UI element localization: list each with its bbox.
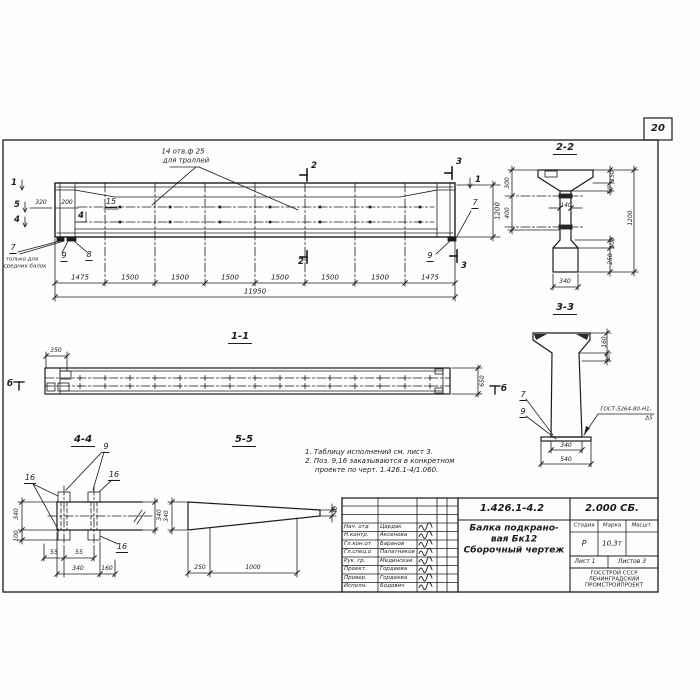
signature-role: Проект. (344, 566, 367, 572)
signature-role: Нач. отд (344, 524, 369, 530)
d44-dim-55a: 55 (50, 550, 58, 556)
d44-dim-340-left: 340 (14, 508, 20, 519)
d44-pos-16-right: 16 (108, 471, 120, 481)
dim-span-6: 1500 (321, 275, 339, 282)
signature-name: Бодович (380, 583, 404, 589)
section-1-1-linework (14, 352, 500, 397)
dim-span-8: 1475 (421, 275, 439, 282)
position-label-9-right: 9 (426, 252, 433, 262)
d55-dim-40: 40 (333, 506, 339, 514)
signature-role: Провер. (344, 575, 367, 581)
drawing-linework (0, 0, 700, 700)
s11-marker-b-right: б (501, 385, 507, 394)
d44-dim-55b: 55 (75, 550, 83, 556)
section-1-1-title: 1-1 (228, 332, 252, 344)
section-2-2-title: 2-2 (553, 143, 577, 155)
dim-total-11950: 11950 (244, 289, 266, 296)
s22-dim-250: 250 (608, 253, 614, 264)
position-label-7-left: 7 (9, 244, 16, 254)
view-marker-5-left: 5 (14, 201, 20, 210)
sheet-label: Лист 1 (575, 559, 596, 565)
section-2-2-linework (505, 166, 638, 290)
section-marker-3-bottom: 3 (461, 262, 467, 271)
signature-role: Рук. гр. (344, 558, 366, 564)
trolley-note-line2: для троллей (163, 158, 209, 165)
s22-dim-140: 140 (560, 203, 571, 209)
d55-dim-250: 250 (194, 565, 205, 571)
section-marker-3-top: 3 (456, 158, 462, 167)
position-label-4: 4 (78, 212, 84, 221)
dim-span-4: 1500 (221, 275, 239, 282)
signature-role: Гл.кон.от (344, 541, 371, 547)
mark-value: 10,3т (602, 541, 622, 548)
d44-dim-160-bottom: 160 (101, 566, 112, 572)
detail-4-4-title: 4-4 (71, 435, 95, 447)
signature-name: Аксенова (380, 532, 407, 538)
signature-name: Гордеева (380, 566, 407, 572)
d55-dim-1000: 1000 (245, 565, 260, 571)
drawing-title-line2: вая Бк12 (491, 536, 537, 545)
section-marker-2-top: 2 (311, 162, 317, 171)
mark-label: Марка (603, 523, 621, 529)
signature-role: Гл.спец.о (344, 549, 371, 555)
d44-dim-100-left: 100 (14, 530, 20, 541)
dim-200: 200 (61, 200, 72, 206)
blueprint-sheet: 20 1 5 4 1 2 2 3 3 14 отв.ф 25 для тролл… (0, 0, 700, 700)
doc-number: 1.426.1-4.2 (480, 504, 544, 514)
s22-dim-400: 400 (505, 207, 511, 218)
s22-dim-300: 300 (505, 177, 511, 188)
drawing-title-line3: Сборочный чертеж (464, 547, 565, 556)
d44-pos-9: 9 (102, 443, 109, 453)
signature-role: Исполн. (344, 583, 367, 589)
s22-dim-100: 100 (610, 237, 616, 248)
sheets-label: Листов 3 (618, 559, 646, 565)
detail-4-4-linework (18, 452, 158, 577)
drawing-title-line1: Балка подкрано- (469, 525, 558, 534)
section-marker-2-bottom: 2 (298, 258, 304, 267)
scale-label: Масшт. (631, 523, 652, 529)
note-7-line1: только для (6, 257, 38, 263)
s22-dim-340: 340 (559, 279, 570, 285)
s33-weld-callout: ГОСТ-5264-80-Н1- (600, 407, 651, 413)
signature-name: Мединская (380, 558, 412, 564)
signature-name: Палатников (380, 549, 415, 555)
position-label-15: 15 (105, 198, 117, 208)
view-marker-1-right: 1 (475, 176, 481, 185)
s33-weld-size: Δ5 (645, 416, 652, 422)
sheet-number: 20 (651, 124, 665, 134)
stage-value: Р (582, 540, 587, 548)
dim-320: 320 (35, 200, 46, 206)
s33-pos-9: 9 (519, 408, 526, 418)
signature-role: Н.контр. (344, 532, 369, 538)
signature-name: Цардак (380, 524, 402, 530)
note-line-3: проекте по черт. 1.426.1-4/1.060. (315, 466, 438, 474)
s33-dim-30: 30 (606, 354, 612, 362)
note-line-1: 1. Таблицу исполнений см. лист 3. (305, 448, 433, 456)
dim-span-3: 1500 (171, 275, 189, 282)
s33-dim-340: 340 (560, 443, 571, 449)
s11-marker-b-left: б (7, 380, 13, 389)
view-marker-4-left: 4 (14, 216, 20, 225)
signature-name: Баранов (380, 541, 404, 547)
d44-pos-16-bottom: 16 (116, 543, 128, 553)
s22-dim-150: 150 (610, 170, 616, 181)
position-label-7-right: 7 (471, 199, 478, 209)
dim-1200-right: 1200 (495, 202, 502, 220)
dim-span-5: 1500 (271, 275, 289, 282)
doc-code: 2.000 СБ. (585, 504, 639, 514)
s11-dim-650: 650 (480, 375, 486, 386)
position-label-8-left: 8 (85, 251, 92, 261)
trolley-note-line1: 14 отв.ф 25 (162, 149, 205, 156)
note-line-2: 2. Поз. 9,16 заказываются в конкретном (305, 457, 455, 465)
sheet-frame (3, 118, 672, 592)
position-label-9-left: 9 (60, 252, 67, 262)
stage-label: Стадия (573, 523, 594, 529)
dim-span-1: 1475 (71, 275, 89, 282)
d44-dim-340-bottom: 340 (72, 566, 83, 572)
org-line3: ПРОМСТРОЙПРОЕКТ (585, 583, 643, 589)
s22-dim-1200: 1200 (628, 210, 634, 225)
section-3-3-title: 3-3 (553, 303, 577, 315)
dim-span-7: 1500 (371, 275, 389, 282)
s11-dim-350: 350 (50, 348, 61, 354)
section-3-3-linework (526, 329, 654, 467)
dim-span-2: 1500 (121, 275, 139, 282)
note-7-line2: средних балок (4, 264, 47, 270)
s33-dim-160: 160 (602, 336, 608, 347)
view-marker-1-left: 1 (11, 179, 17, 188)
detail-5-5-title: 5-5 (232, 435, 256, 447)
s33-dim-540: 540 (560, 457, 571, 463)
s33-pos-7: 7 (519, 391, 526, 401)
s22-dim-50: 50 (608, 186, 614, 194)
signature-squiggles (419, 523, 432, 590)
d55-dim-340: 340 (164, 510, 170, 521)
d44-pos-16-left: 16 (24, 474, 36, 484)
signature-name: Гордеева (380, 575, 407, 581)
